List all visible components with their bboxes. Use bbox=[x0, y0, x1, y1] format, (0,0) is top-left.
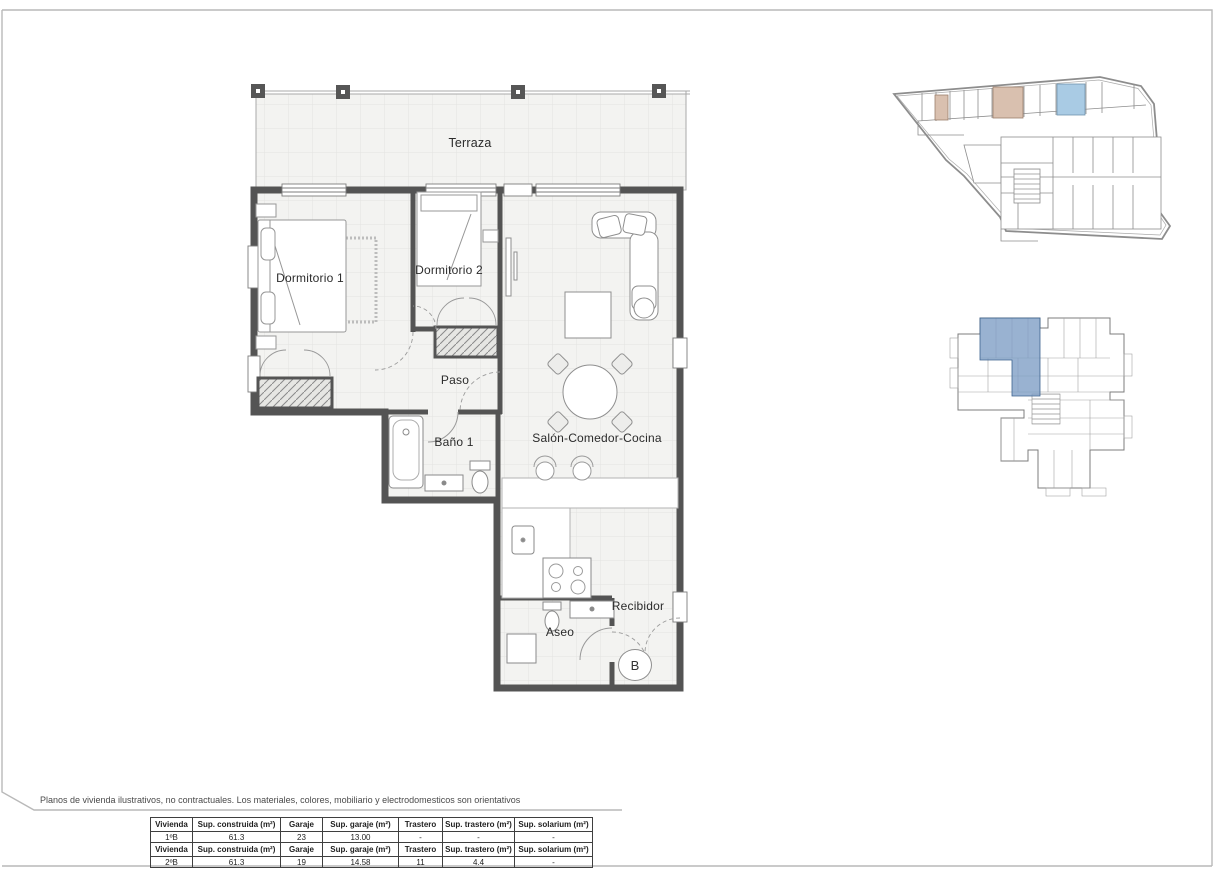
table-cell: - bbox=[399, 832, 443, 843]
label-recibidor: Recibidor bbox=[612, 599, 665, 613]
header-cell: Sup. solarium (m²) bbox=[515, 843, 593, 857]
header-cell: Sup. trastero (m²) bbox=[443, 818, 515, 832]
garage-19-highlight bbox=[993, 87, 1023, 118]
label-dormitorio2: Dormitorio 2 bbox=[415, 263, 483, 277]
counter-peninsula bbox=[502, 478, 678, 508]
table-cell: 19 bbox=[281, 857, 323, 868]
table-cell: 2ºB bbox=[151, 857, 193, 868]
coffee-table bbox=[565, 292, 611, 338]
label-aseo: Aseo bbox=[546, 625, 574, 639]
table-cell: - bbox=[443, 832, 515, 843]
unit-letter-badge: B bbox=[618, 649, 652, 681]
surface-table: Vivienda Sup. construida (m²) Garaje Sup… bbox=[150, 817, 593, 868]
table-row: 1ºB 61.3 23 13.00 - - - bbox=[151, 832, 593, 843]
header-cell: Vivienda bbox=[151, 843, 193, 857]
header-cell: Sup. solarium (m²) bbox=[515, 818, 593, 832]
header-cell: Garaje bbox=[281, 843, 323, 857]
table-cell: 11 bbox=[399, 857, 443, 868]
label-salon: Salón-Comedor-Cocina bbox=[532, 431, 661, 445]
stool bbox=[573, 462, 591, 480]
header-cell: Sup. garaje (m²) bbox=[323, 818, 399, 832]
plan-sheet: Terraza Dormitorio 1 Dormitorio 2 Paso B… bbox=[0, 0, 1220, 870]
header-cell: Trastero bbox=[399, 843, 443, 857]
nightstand bbox=[256, 336, 276, 349]
hob bbox=[543, 558, 591, 598]
washer bbox=[507, 634, 536, 663]
table-cell: - bbox=[515, 832, 593, 843]
header-cell: Vivienda bbox=[151, 818, 193, 832]
table-cell: 61.3 bbox=[193, 832, 281, 843]
table-row: 2ºB 61.3 19 14.58 11 4.4 - bbox=[151, 857, 593, 868]
nightstand bbox=[483, 230, 498, 242]
header-cell: Garaje bbox=[281, 818, 323, 832]
table-cell: 61.3 bbox=[193, 857, 281, 868]
label-paso: Paso bbox=[441, 373, 469, 387]
header-cell: Sup. trastero (m²) bbox=[443, 843, 515, 857]
table-cell: 13.00 bbox=[323, 832, 399, 843]
label-dormitorio1: Dormitorio 1 bbox=[276, 271, 344, 285]
table-cell: 1ºB bbox=[151, 832, 193, 843]
tv-unit bbox=[506, 238, 511, 296]
location-key-plan bbox=[928, 298, 1168, 508]
header-cell: Trastero bbox=[399, 818, 443, 832]
toilet-tank bbox=[470, 461, 490, 470]
header-cell: Sup. construida (m²) bbox=[193, 843, 281, 857]
table-cell: 4.4 bbox=[443, 857, 515, 868]
header-cell: Sup. garaje (m²) bbox=[323, 843, 399, 857]
disclaimer-text: Planos de vivienda ilustrativos, no cont… bbox=[40, 795, 520, 805]
label-bano1: Baño 1 bbox=[434, 435, 473, 449]
bathtub bbox=[389, 416, 423, 488]
toilet-tank bbox=[543, 602, 561, 610]
trastero-11-highlight bbox=[935, 95, 948, 120]
header-cell: Sup. construida (m²) bbox=[193, 818, 281, 832]
nightstand bbox=[256, 204, 276, 217]
garage-23-highlight bbox=[1057, 84, 1085, 115]
dining-table bbox=[563, 365, 617, 419]
table-cell: - bbox=[515, 857, 593, 868]
table-cell: 14.58 bbox=[323, 857, 399, 868]
label-terraza: Terraza bbox=[448, 136, 491, 150]
stool bbox=[536, 462, 554, 480]
table-header-row: Vivienda Sup. construida (m²) Garaje Sup… bbox=[151, 843, 593, 857]
table-cell: 23 bbox=[281, 832, 323, 843]
main-floorplan: Terraza Dormitorio 1 Dormitorio 2 Paso B… bbox=[240, 80, 710, 705]
garage-plan-inset bbox=[888, 73, 1188, 251]
table-header-row: Vivienda Sup. construida (m²) Garaje Sup… bbox=[151, 818, 593, 832]
toilet bbox=[472, 471, 488, 493]
